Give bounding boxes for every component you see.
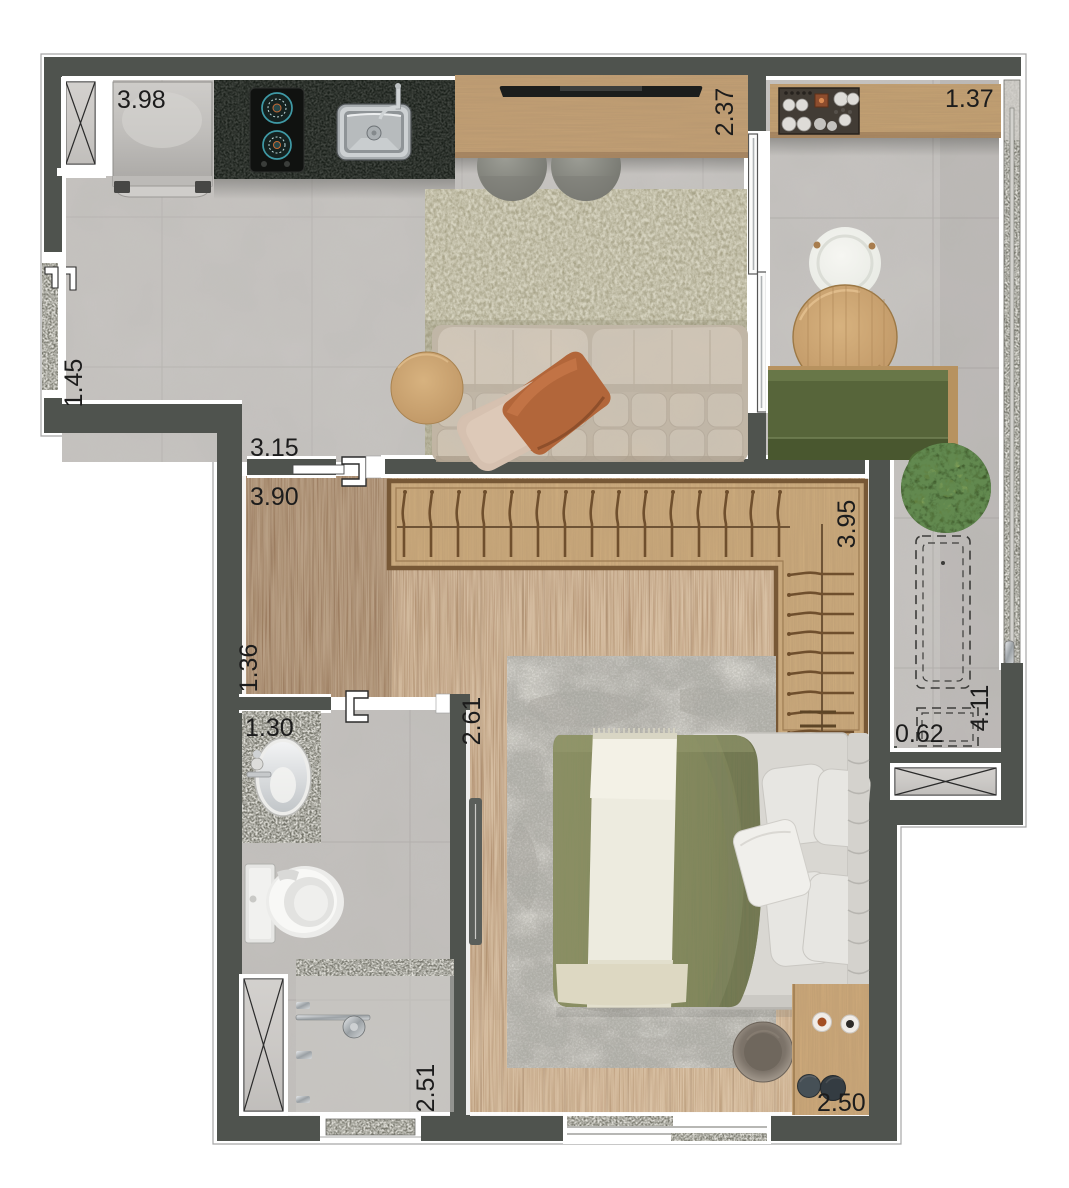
svg-text:3.95: 3.95 xyxy=(833,500,861,549)
svg-text:2.37: 2.37 xyxy=(711,88,739,137)
svg-text:1.36: 1.36 xyxy=(235,644,263,693)
svg-text:3.90: 3.90 xyxy=(250,483,299,511)
svg-text:3.98: 3.98 xyxy=(117,86,166,114)
svg-text:3.15: 3.15 xyxy=(250,434,299,462)
svg-text:2.50: 2.50 xyxy=(817,1089,866,1117)
svg-text:2.51: 2.51 xyxy=(412,1064,440,1113)
svg-text:1.45: 1.45 xyxy=(60,359,88,408)
svg-text:0.62: 0.62 xyxy=(895,720,944,748)
svg-text:1.30: 1.30 xyxy=(245,714,294,742)
svg-text:1.37: 1.37 xyxy=(945,85,994,113)
svg-text:2.61: 2.61 xyxy=(458,697,486,746)
svg-text:4.11: 4.11 xyxy=(966,685,994,732)
